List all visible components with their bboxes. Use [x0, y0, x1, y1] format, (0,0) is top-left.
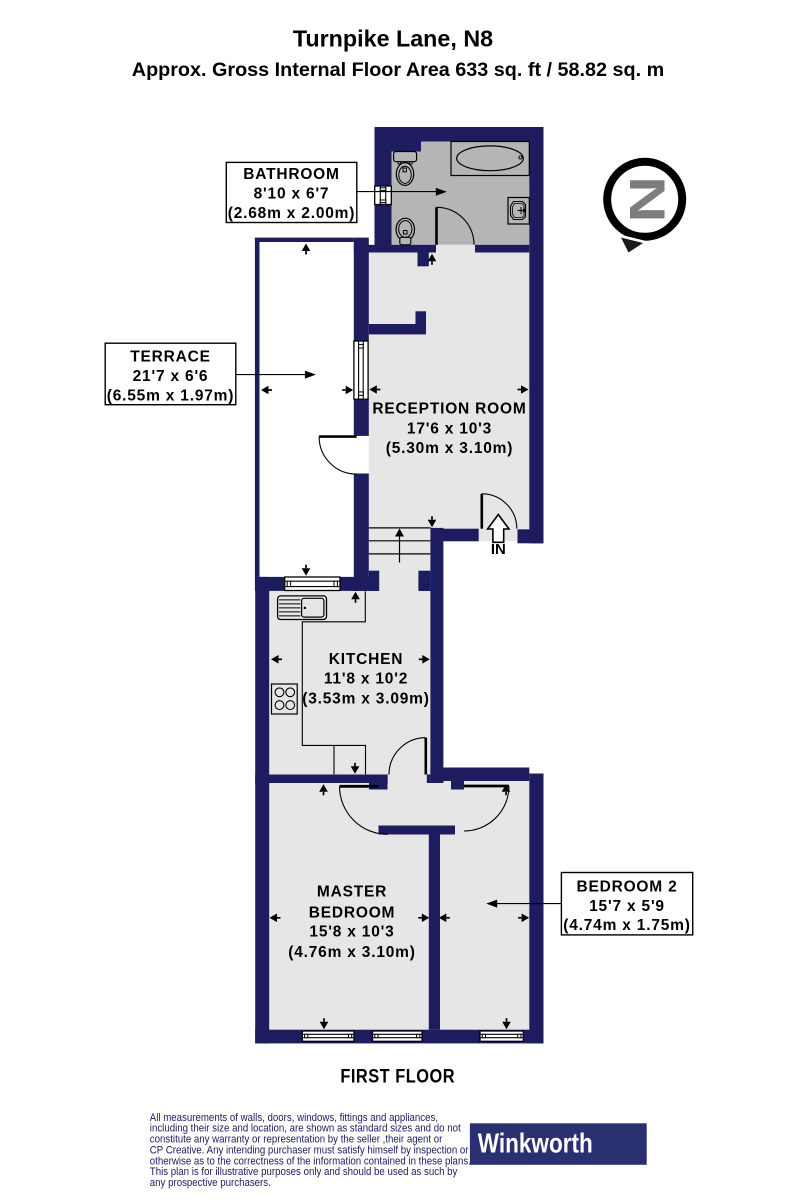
svg-text:any prospective purchasers.: any prospective purchasers. — [150, 1176, 271, 1189]
svg-text:BATHROOM: BATHROOM — [243, 166, 340, 183]
svg-text:FIRST FLOOR: FIRST FLOOR — [340, 1065, 455, 1087]
svg-text:RECEPTION ROOM: RECEPTION ROOM — [372, 401, 526, 418]
svg-text:21'7 x 6'6: 21'7 x 6'6 — [133, 368, 209, 385]
svg-text:(4.76m x 3.10m): (4.76m x 3.10m) — [288, 944, 415, 961]
svg-text:(3.53m x 3.09m): (3.53m x 3.09m) — [302, 690, 429, 707]
svg-text:MASTER: MASTER — [317, 884, 387, 901]
svg-text:(5.30m x 3.10m): (5.30m x 3.10m) — [386, 440, 513, 457]
svg-text:17'6 x 10'3: 17'6 x 10'3 — [407, 420, 492, 437]
svg-text:BEDROOM: BEDROOM — [309, 905, 396, 922]
svg-text:Turnpike Lane, N8: Turnpike Lane, N8 — [293, 26, 493, 52]
svg-text:Approx. Gross Internal Floor A: Approx. Gross Internal Floor Area 633 sq… — [132, 59, 664, 81]
svg-text:N: N — [619, 176, 674, 223]
svg-text:TERRACE: TERRACE — [130, 349, 211, 366]
svg-text:(4.74m x 1.75m): (4.74m x 1.75m) — [563, 917, 690, 934]
svg-text:11'8 x 10'2: 11'8 x 10'2 — [324, 671, 408, 688]
svg-text:(6.55m x 1.97m): (6.55m x 1.97m) — [107, 388, 234, 405]
svg-text:KITCHEN: KITCHEN — [329, 651, 404, 668]
svg-text:(2.68m x 2.00m): (2.68m x 2.00m) — [228, 205, 355, 222]
svg-text:8'10 x 6'7: 8'10 x 6'7 — [254, 186, 330, 203]
svg-text:BEDROOM 2: BEDROOM 2 — [576, 878, 677, 895]
svg-text:Winkworth: Winkworth — [478, 1128, 593, 1159]
svg-text:15'7 x 5'9: 15'7 x 5'9 — [589, 898, 665, 915]
svg-text:15'8 x 10'3: 15'8 x 10'3 — [309, 924, 394, 941]
svg-text:IN: IN — [491, 541, 506, 558]
